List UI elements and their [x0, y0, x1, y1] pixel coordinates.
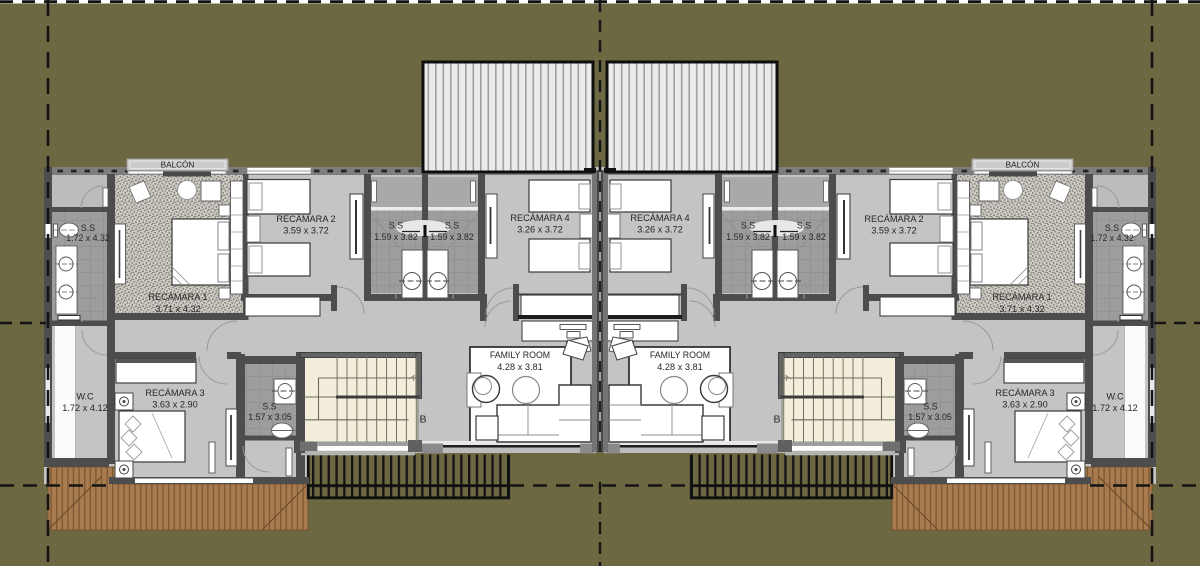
svg-text:1.72 x 4.12: 1.72 x 4.12 — [62, 403, 107, 413]
svg-text:FAMILY ROOM: FAMILY ROOM — [650, 350, 710, 360]
svg-text:4.28 x 3.81: 4.28 x 3.81 — [497, 362, 542, 372]
svg-text:3.63 x 2.90: 3.63 x 2.90 — [152, 400, 197, 410]
svg-text:RECÁMARA 3: RECÁMARA 3 — [145, 388, 204, 398]
svg-text:3.26 x 3.72: 3.26 x 3.72 — [517, 225, 562, 235]
svg-text:B: B — [419, 414, 426, 426]
svg-text:S.S: S.S — [797, 221, 811, 231]
svg-text:3.71 x 4.32: 3.71 x 4.32 — [999, 304, 1044, 314]
svg-text:S.S: S.S — [923, 402, 937, 412]
svg-text:BALCÓN: BALCÓN — [161, 160, 195, 170]
svg-text:RECÁMARA 2: RECÁMARA 2 — [864, 214, 923, 224]
svg-text:3.63 x 2.90: 3.63 x 2.90 — [1002, 400, 1047, 410]
svg-text:1.72 x 4.12: 1.72 x 4.12 — [1092, 403, 1137, 413]
svg-text:S.S: S.S — [1105, 223, 1119, 233]
svg-text:BALCÓN: BALCÓN — [1006, 160, 1040, 170]
svg-text:1.59 x 3.82: 1.59 x 3.82 — [782, 232, 826, 242]
svg-text:S.S: S.S — [389, 221, 403, 231]
svg-text:RECÁMARA 4: RECÁMARA 4 — [510, 213, 569, 223]
svg-text:1.57 x 3.05: 1.57 x 3.05 — [908, 412, 952, 422]
svg-text:W.C: W.C — [76, 392, 94, 402]
svg-text:1.59 x 3.82: 1.59 x 3.82 — [726, 232, 770, 242]
svg-text:RECÁMARA 1: RECÁMARA 1 — [992, 292, 1051, 302]
svg-text:RECÁMARA 4: RECÁMARA 4 — [630, 213, 689, 223]
svg-text:W.C: W.C — [1106, 392, 1124, 402]
svg-text:RECÁMARA 3: RECÁMARA 3 — [995, 388, 1054, 398]
svg-text:S.S: S.S — [81, 223, 95, 233]
svg-text:RECÁMARA 1: RECÁMARA 1 — [148, 292, 207, 302]
svg-text:3.59 x 3.72: 3.59 x 3.72 — [283, 226, 328, 236]
svg-text:FAMILY ROOM: FAMILY ROOM — [490, 350, 550, 360]
svg-text:3.26 x 3.72: 3.26 x 3.72 — [637, 225, 682, 235]
svg-text:S.S: S.S — [445, 221, 459, 231]
svg-text:S.S: S.S — [741, 221, 755, 231]
svg-text:1.57 x 3.05: 1.57 x 3.05 — [248, 412, 292, 422]
svg-text:3.59 x 3.72: 3.59 x 3.72 — [871, 226, 916, 236]
svg-text:3.71 x 4.32: 3.71 x 4.32 — [155, 304, 200, 314]
svg-text:B: B — [773, 414, 780, 426]
svg-text:RECÁMARA 2: RECÁMARA 2 — [276, 214, 335, 224]
svg-text:1.72 x 4.32: 1.72 x 4.32 — [1090, 233, 1134, 243]
svg-text:1.59 x 3.82: 1.59 x 3.82 — [430, 232, 474, 242]
svg-text:S.S: S.S — [262, 402, 276, 412]
svg-text:1.59 x 3.82: 1.59 x 3.82 — [374, 232, 418, 242]
svg-text:4.28 x 3.81: 4.28 x 3.81 — [657, 362, 702, 372]
svg-text:1.72 x 4.32: 1.72 x 4.32 — [66, 233, 110, 243]
